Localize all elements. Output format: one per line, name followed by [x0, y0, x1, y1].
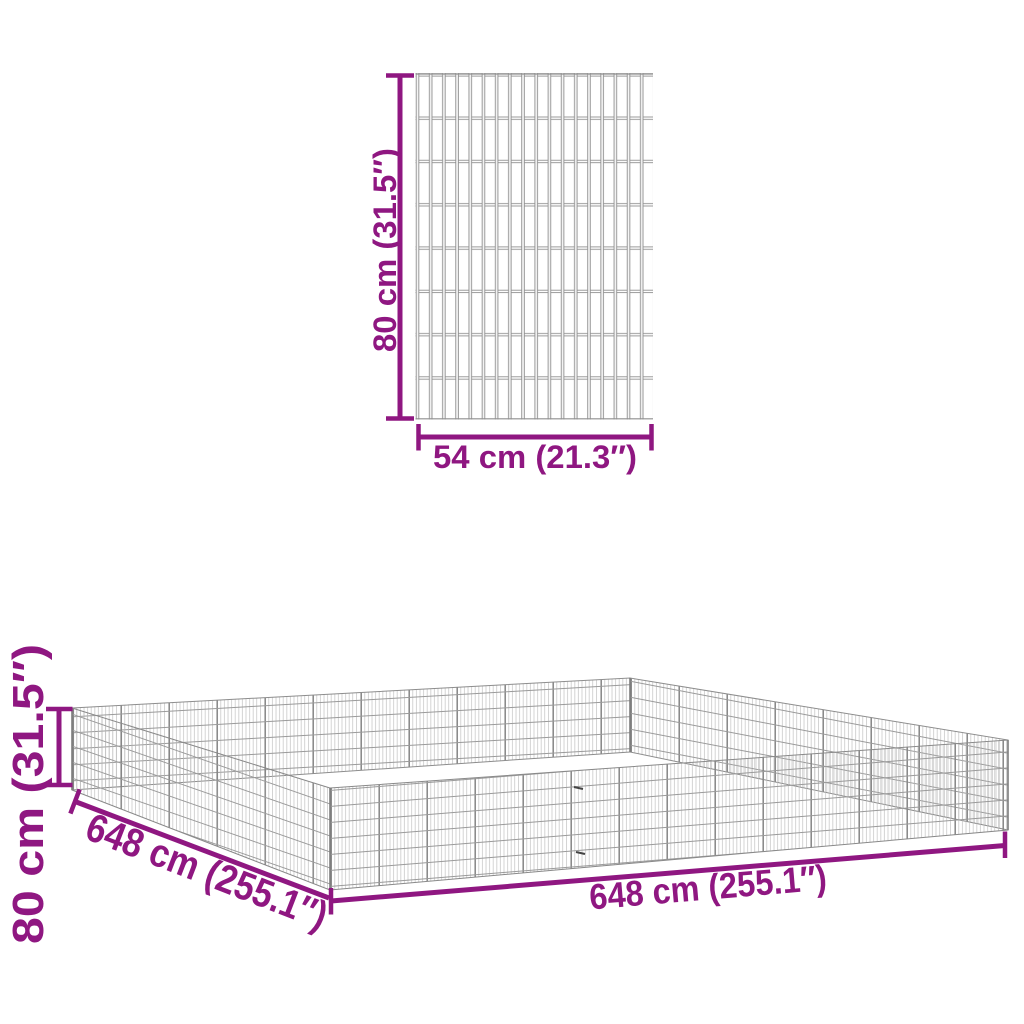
panel-height-label: 80 cm (31.5″): [367, 148, 403, 352]
panel-front-view: [416, 73, 654, 420]
diagram-canvas: 80 cm (31.5″) 54 cm (21.3″): [0, 0, 1024, 1024]
enclosure-front-edge-label: 648 cm (255.1″): [588, 857, 829, 918]
panel-mesh-vertical-wires: [416, 73, 654, 420]
enclosure-height-label: 80 cm (31.5″): [4, 644, 53, 944]
product-dimension-image: 80 cm (31.5″) 54 cm (21.3″): [0, 0, 1024, 1024]
panel-width-label: 54 cm (21.3″): [433, 439, 637, 475]
